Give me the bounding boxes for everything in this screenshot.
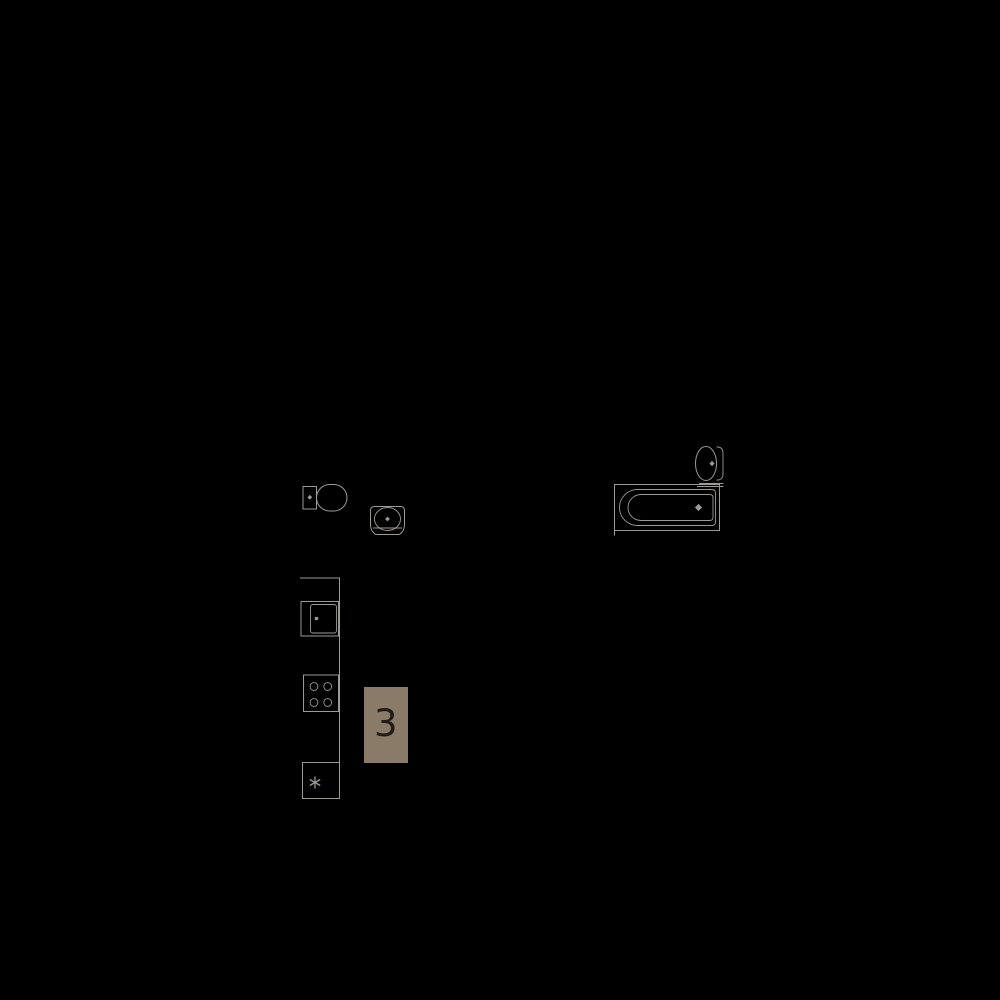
bathtub-enclosure bbox=[615, 485, 720, 536]
bathtub-icon bbox=[615, 485, 720, 536]
cooktop-outline bbox=[304, 675, 339, 712]
unit-number-plate: 3 bbox=[364, 687, 408, 763]
fridge-outline bbox=[303, 763, 340, 799]
pedestal-sink-bracket bbox=[717, 447, 724, 480]
snowflake-asterisk-icon bbox=[310, 777, 320, 789]
kitchen-sink-basin bbox=[311, 605, 337, 634]
cooktop-burner-1 bbox=[310, 683, 318, 691]
kitchen-sink-faucet bbox=[315, 617, 319, 621]
floor-plan-svg bbox=[0, 0, 1000, 1000]
pedestal-sink-faucet bbox=[709, 461, 714, 466]
toilet-icon bbox=[303, 485, 347, 512]
floor-plan-canvas: 3 bbox=[0, 0, 1000, 1000]
kitchen-counter-line bbox=[300, 578, 340, 799]
bathtub-drain bbox=[695, 504, 702, 511]
kitchen-sink-icon bbox=[301, 602, 339, 637]
cooktop-icon bbox=[304, 675, 339, 712]
cooktop-burner-4 bbox=[324, 699, 332, 707]
fridge-freezer-icon bbox=[303, 763, 340, 799]
washbasin-icon bbox=[371, 507, 405, 535]
toilet-bowl bbox=[317, 485, 348, 512]
washbasin-drain bbox=[385, 517, 390, 522]
cooktop-burner-2 bbox=[324, 683, 332, 691]
toilet-flush-valve bbox=[307, 495, 312, 500]
unit-number-label: 3 bbox=[374, 705, 398, 742]
cooktop-burner-3 bbox=[310, 699, 318, 707]
pedestal-sink-icon bbox=[696, 447, 724, 487]
kitchen-sink-outline bbox=[301, 602, 339, 637]
